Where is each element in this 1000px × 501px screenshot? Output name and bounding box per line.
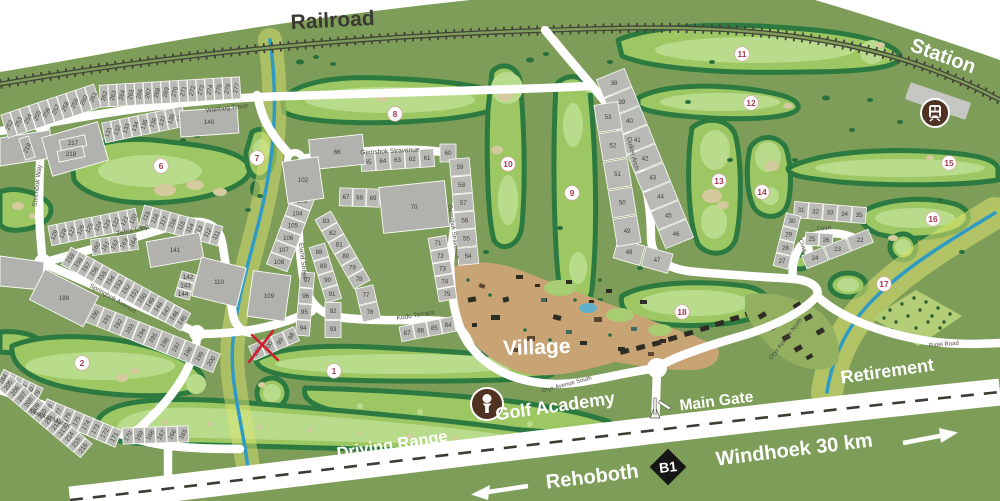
svg-text:94: 94 — [300, 325, 307, 332]
svg-text:11: 11 — [738, 49, 747, 59]
svg-text:27: 27 — [779, 258, 786, 265]
svg-text:95: 95 — [301, 309, 308, 316]
svg-text:76: 76 — [367, 309, 374, 316]
svg-text:92: 92 — [330, 308, 337, 315]
svg-text:91: 91 — [329, 291, 336, 298]
plot-95: 95 — [297, 304, 312, 320]
svg-text:26: 26 — [823, 237, 830, 244]
plot-168: 168 — [144, 427, 156, 443]
svg-text:35: 35 — [856, 212, 863, 219]
village-label: Village — [503, 335, 571, 360]
svg-text:22: 22 — [857, 237, 864, 244]
plot-166: 166 — [166, 426, 178, 442]
svg-text:53: 53 — [605, 114, 612, 121]
svg-text:28: 28 — [782, 245, 789, 252]
svg-text:142: 142 — [183, 274, 194, 281]
svg-text:90: 90 — [324, 277, 331, 284]
plot-49: 49 — [613, 215, 641, 246]
svg-text:34: 34 — [841, 211, 848, 218]
svg-text:25: 25 — [809, 236, 816, 243]
svg-text:96: 96 — [302, 293, 309, 300]
svg-text:56: 56 — [461, 218, 468, 225]
svg-text:44: 44 — [657, 193, 664, 200]
plot-59: 59 — [449, 158, 470, 177]
svg-text:46: 46 — [673, 231, 680, 238]
plot-86: 86 — [413, 322, 429, 339]
hole-marker-10: 10 — [501, 157, 516, 172]
svg-text:1: 1 — [332, 366, 337, 376]
svg-text:106: 106 — [283, 235, 294, 242]
plot-77: 77 — [355, 285, 376, 305]
svg-text:49: 49 — [624, 228, 631, 235]
hole-marker-15: 15 — [942, 156, 957, 171]
hole-marker-12: 12 — [744, 96, 759, 111]
hole-marker-18: 18 — [675, 305, 690, 320]
plot-33: 33 — [822, 204, 837, 221]
hole-marker-11: 11 — [735, 47, 750, 62]
svg-text:30: 30 — [789, 218, 796, 225]
svg-text:16: 16 — [928, 214, 938, 224]
svg-text:70: 70 — [411, 204, 418, 211]
train-icon — [921, 99, 949, 127]
svg-text:82: 82 — [329, 230, 336, 237]
svg-text:83: 83 — [323, 218, 330, 225]
plot-167: 167 — [155, 427, 167, 443]
hole-marker-9: 9 — [565, 186, 580, 201]
plot-56: 56 — [454, 211, 475, 230]
svg-text:10: 10 — [503, 159, 513, 169]
svg-text:85: 85 — [431, 325, 438, 332]
svg-text:102: 102 — [298, 177, 309, 184]
svg-text:75: 75 — [444, 291, 451, 298]
svg-text:66: 66 — [334, 149, 341, 156]
svg-text:217: 217 — [68, 140, 79, 147]
svg-text:33: 33 — [827, 210, 834, 217]
plot-87: 87 — [399, 324, 415, 341]
svg-text:67: 67 — [343, 194, 350, 201]
svg-text:60: 60 — [445, 150, 452, 157]
hole-marker-14: 14 — [755, 185, 770, 200]
plot-102: 102 — [282, 157, 323, 204]
plot-68: 68 — [353, 188, 366, 206]
svg-text:104: 104 — [292, 210, 303, 217]
svg-text:50: 50 — [619, 200, 626, 207]
hole-marker-8: 8 — [388, 107, 403, 122]
railroad-label: Railroad — [290, 7, 375, 34]
plot-92: 92 — [325, 302, 341, 319]
svg-text:38: 38 — [611, 80, 618, 87]
plot-67: 67 — [339, 188, 352, 206]
svg-text:109: 109 — [264, 293, 275, 300]
svg-text:64: 64 — [379, 158, 386, 165]
plot-25: 25 — [805, 232, 819, 246]
svg-text:81: 81 — [336, 241, 343, 248]
svg-text:24: 24 — [812, 255, 819, 262]
svg-text:78: 78 — [356, 276, 363, 283]
svg-text:73: 73 — [439, 266, 446, 273]
plot-109: 109 — [247, 271, 291, 322]
plot-52: 52 — [599, 130, 627, 161]
svg-text:144: 144 — [178, 291, 189, 298]
svg-text:86: 86 — [417, 328, 424, 335]
svg-text:8: 8 — [393, 109, 398, 119]
b1-label: B1 — [658, 458, 678, 476]
svg-text:13: 13 — [714, 176, 724, 186]
plot-51: 51 — [603, 158, 631, 189]
svg-text:89: 89 — [320, 263, 327, 270]
svg-text:17: 17 — [879, 279, 889, 289]
svg-text:108: 108 — [274, 259, 285, 266]
svg-text:2: 2 — [80, 358, 85, 368]
svg-text:48: 48 — [626, 249, 633, 256]
plot-96: 96 — [298, 288, 313, 304]
svg-text:84: 84 — [445, 322, 452, 329]
svg-text:72: 72 — [437, 253, 444, 260]
svg-text:18: 18 — [677, 307, 687, 317]
svg-text:93: 93 — [330, 326, 337, 333]
plot-165: 165 — [177, 426, 189, 442]
svg-text:141: 141 — [170, 247, 181, 254]
svg-text:63: 63 — [394, 157, 401, 164]
svg-text:87: 87 — [404, 330, 411, 337]
svg-text:29: 29 — [785, 232, 792, 239]
plot-69: 69 — [366, 189, 379, 207]
hole-marker-6: 6 — [154, 159, 169, 174]
plot-169: 169 — [133, 427, 145, 443]
plot-61: 61 — [419, 149, 434, 168]
svg-text:32: 32 — [812, 208, 819, 215]
svg-text:52: 52 — [609, 143, 616, 150]
plot-75: 75 — [437, 286, 457, 301]
svg-text:74: 74 — [441, 278, 448, 285]
golf-estate-map: B1 2522532542552562572582592602612622632… — [0, 0, 1000, 501]
svg-text:54: 54 — [465, 253, 472, 260]
svg-text:68: 68 — [356, 195, 363, 202]
svg-text:39: 39 — [618, 99, 625, 106]
svg-text:40: 40 — [626, 118, 633, 125]
plot-76: 76 — [359, 302, 380, 322]
svg-text:62: 62 — [409, 156, 416, 163]
svg-text:55: 55 — [463, 235, 470, 242]
svg-text:57: 57 — [460, 200, 467, 207]
svg-text:77: 77 — [363, 292, 370, 299]
svg-text:45: 45 — [665, 212, 672, 219]
svg-text:105: 105 — [288, 223, 299, 230]
plot-54: 54 — [457, 247, 478, 266]
svg-text:41: 41 — [634, 137, 641, 144]
hole-marker-16: 16 — [926, 212, 941, 227]
svg-text:188: 188 — [59, 295, 70, 302]
svg-text:51: 51 — [614, 171, 621, 178]
svg-text:12: 12 — [746, 98, 756, 108]
plot-84: 84 — [440, 316, 456, 333]
plot-55: 55 — [456, 229, 477, 248]
svg-text:218: 218 — [66, 151, 77, 158]
hole-marker-1: 1 — [327, 364, 342, 379]
svg-text:80: 80 — [342, 253, 349, 260]
svg-text:31: 31 — [798, 207, 805, 214]
svg-text:88: 88 — [316, 249, 323, 256]
svg-text:42: 42 — [642, 156, 649, 163]
hole-marker-13: 13 — [712, 174, 727, 189]
svg-text:69: 69 — [370, 195, 377, 202]
hole-marker-2: 2 — [75, 356, 90, 371]
plot-34: 34 — [837, 205, 852, 222]
plot-32: 32 — [808, 203, 823, 220]
plot-70: 70 — [379, 181, 449, 234]
svg-text:143: 143 — [180, 283, 191, 290]
plot-35: 35 — [851, 206, 866, 223]
svg-text:59: 59 — [457, 164, 464, 171]
plot-94: 94 — [295, 320, 310, 336]
svg-text:23: 23 — [834, 246, 841, 253]
map-canvas: B1 2522532542552562572582592602612622632… — [0, 0, 1000, 501]
svg-text:140: 140 — [204, 119, 215, 126]
svg-text:15: 15 — [944, 158, 954, 168]
plot-58: 58 — [451, 175, 472, 194]
svg-text:6: 6 — [159, 161, 164, 171]
svg-text:7: 7 — [255, 153, 260, 163]
svg-text:71: 71 — [435, 240, 442, 247]
hole-marker-17: 17 — [877, 277, 892, 292]
svg-text:14: 14 — [757, 187, 767, 197]
svg-text:107: 107 — [278, 247, 289, 254]
plot-50: 50 — [608, 187, 636, 218]
hole-marker-7: 7 — [250, 151, 265, 166]
plot-170: 170 — [122, 428, 134, 444]
svg-text:47: 47 — [654, 257, 661, 264]
svg-text:58: 58 — [458, 182, 465, 189]
plot-53: 53 — [594, 101, 622, 132]
svg-text:43: 43 — [649, 175, 656, 182]
plot-85: 85 — [426, 319, 442, 336]
plot-57: 57 — [452, 193, 473, 212]
svg-text:110: 110 — [214, 279, 224, 286]
svg-text:61: 61 — [424, 155, 431, 162]
plot-93: 93 — [325, 320, 341, 337]
svg-text:9: 9 — [570, 188, 575, 198]
svg-text:79: 79 — [349, 265, 356, 272]
